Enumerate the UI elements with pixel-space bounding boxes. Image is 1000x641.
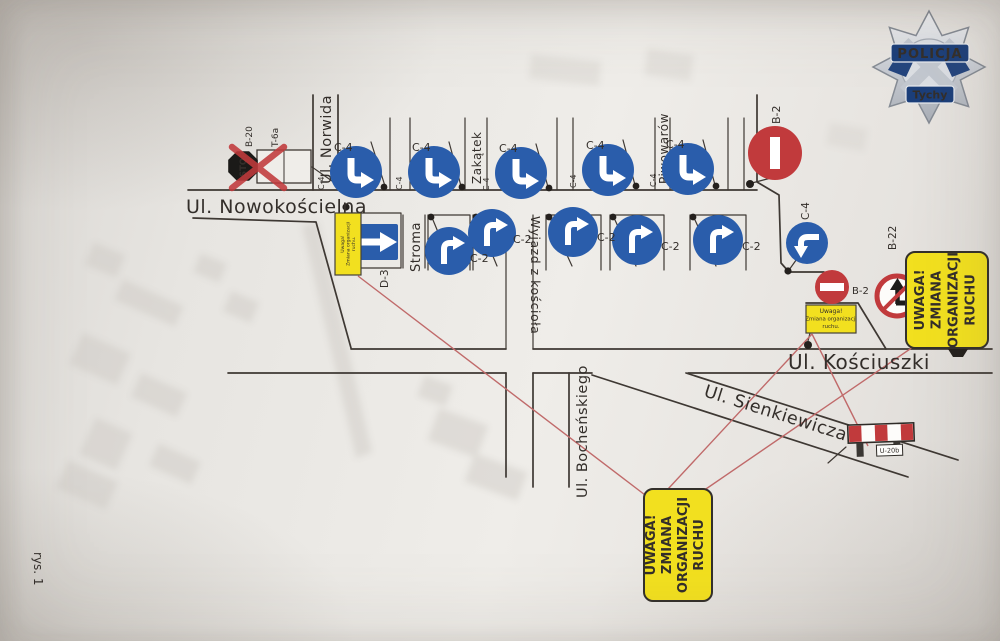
svg-text:C-4: C-4 xyxy=(569,174,578,188)
sign-c2-3 xyxy=(548,207,598,257)
sign-c2-4 xyxy=(612,215,662,265)
sign-c2-5 xyxy=(693,215,743,265)
barrier-u20b: U-20b xyxy=(848,423,915,457)
sign-c2-1 xyxy=(425,227,473,275)
svg-text:RUCHU: RUCHU xyxy=(964,274,979,326)
svg-text:Uwaga!: Uwaga! xyxy=(820,308,843,315)
sign-c4-right xyxy=(786,222,828,264)
road-sienkiewicza-edge2 xyxy=(686,373,958,460)
svg-text:C-4: C-4 xyxy=(317,176,326,190)
no-entry-bar-icon xyxy=(820,283,844,291)
svg-text:Zmiana organizacji: Zmiana organizacji xyxy=(346,222,352,266)
svg-text:C-4: C-4 xyxy=(649,173,658,187)
svg-text:RUCHU: RUCHU xyxy=(692,519,707,571)
warning-box-right: UWAGA! ZMIANA ORGANIZACJI RUCHU xyxy=(906,252,988,348)
middle-lot-lines xyxy=(344,213,746,349)
barrier-stripes-icon xyxy=(849,424,914,442)
note-box-d3: Uwaga! Zmiana organizacji ruchu. xyxy=(335,213,361,275)
street-label-zakatek: Zakątek xyxy=(470,132,484,184)
badge-title: POLICJA xyxy=(897,47,962,62)
svg-text:C-4: C-4 xyxy=(499,142,518,155)
t6a-code-label: T-6a xyxy=(271,128,281,148)
d3-code-label: D-3 xyxy=(379,269,391,288)
svg-text:C-4: C-4 xyxy=(395,176,404,190)
svg-text:C-2: C-2 xyxy=(470,252,489,265)
svg-text:Uwaga!: Uwaga! xyxy=(340,235,346,253)
street-label-stroma: Stroma xyxy=(409,222,424,272)
note-box-kosciuszki: Uwaga! Zmiana organizacji ruchu. xyxy=(805,305,856,333)
stop-sign-group: STOP B-20 T-6a xyxy=(228,126,311,188)
figure-caption: rys. 1 xyxy=(31,552,45,586)
b2-top-code-label: B-2 xyxy=(770,105,783,124)
faint-background-map xyxy=(56,49,867,510)
svg-text:C-2: C-2 xyxy=(661,240,680,253)
svg-text:ORGANIZACJI: ORGANIZACJI xyxy=(947,252,962,348)
street-label-sienkiewicza: Ul. Sienkiewicza xyxy=(701,382,849,446)
police-badge: POLICJA Tychy xyxy=(873,11,985,123)
c4-right-code-label: C-4 xyxy=(800,202,812,220)
svg-text:C-4: C-4 xyxy=(334,141,353,154)
warning-box-bottom: UWAGA! ZMIANA ORGANIZACJI RUCHU xyxy=(644,489,712,601)
svg-text:UWAGA!: UWAGA! xyxy=(644,514,659,575)
svg-text:Zmiana organizacji: Zmiana organizacji xyxy=(805,317,856,323)
svg-text:C-2: C-2 xyxy=(513,233,532,246)
svg-text:UWAGA!: UWAGA! xyxy=(913,269,928,330)
b2-mid-code-label: B-2 xyxy=(852,286,869,297)
svg-text:C-2: C-2 xyxy=(597,231,616,244)
svg-text:C-4: C-4 xyxy=(666,138,685,151)
svg-text:C-4: C-4 xyxy=(482,177,491,191)
c2-signs-middle-row: C-2 C-2 C-2 C-2 C-2 xyxy=(425,207,761,275)
badge-subtitle: Tychy xyxy=(913,89,948,102)
svg-text:ORGANIZACJI: ORGANIZACJI xyxy=(676,497,691,593)
no-entry-bar-icon xyxy=(770,137,780,169)
svg-text:ZMIANA: ZMIANA xyxy=(930,271,945,329)
b20-code-label: B-20 xyxy=(245,126,255,147)
svg-text:C-4: C-4 xyxy=(412,141,431,154)
street-label-bochenskiego: Ul. Bocheńskiego xyxy=(575,365,591,498)
svg-text:ruchu.: ruchu. xyxy=(822,324,839,330)
sign-c2-2 xyxy=(468,209,516,257)
sign-b2-mid: B-2 xyxy=(815,270,869,304)
svg-text:ZMIANA: ZMIANA xyxy=(660,516,675,574)
svg-text:ruchu.: ruchu. xyxy=(351,237,357,252)
sign-b2-top: B-2 xyxy=(748,105,802,180)
svg-text:C-4: C-4 xyxy=(586,139,605,152)
u20b-code-label: U-20b xyxy=(880,446,900,455)
svg-text:C-2: C-2 xyxy=(742,240,761,253)
scanned-traffic-plan: Ul. Nowokościelna Ul. Norwida Zakątek Pi… xyxy=(0,0,1000,641)
street-label-kosciuszki: Ul. Kościuszki xyxy=(788,350,930,374)
b22-code-label: B-22 xyxy=(887,226,899,250)
